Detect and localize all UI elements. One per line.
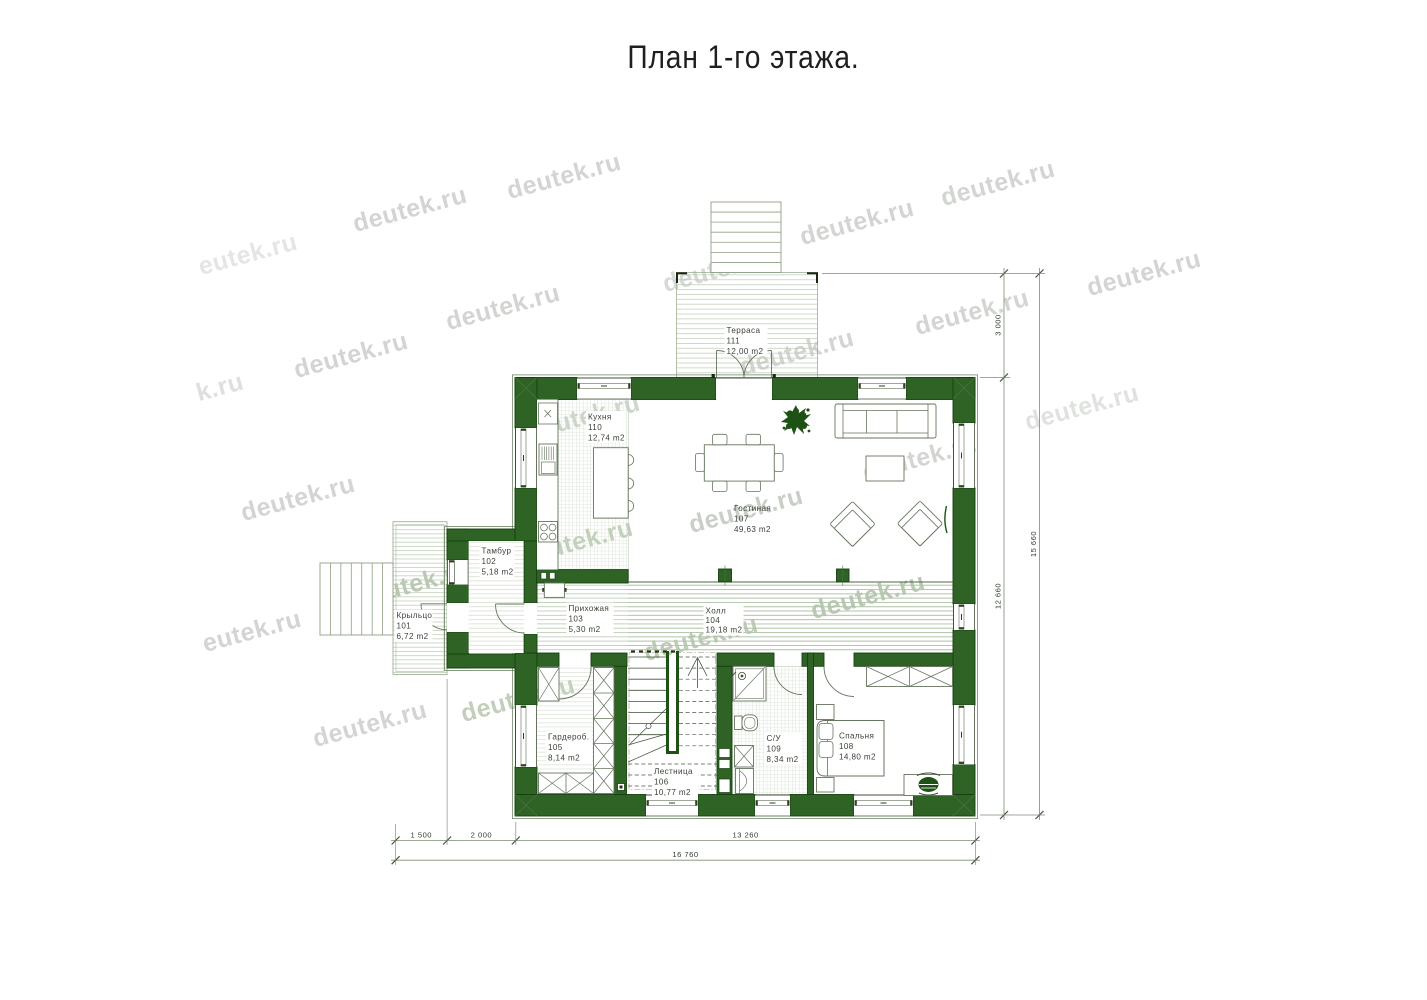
- svg-text:deutek.ru: deutek.ru: [443, 279, 563, 336]
- svg-text:102: 102: [482, 557, 497, 566]
- svg-text:Тамбур: Тамбур: [482, 547, 512, 556]
- svg-text:Кухня: Кухня: [588, 413, 612, 422]
- svg-text:2 000: 2 000: [471, 831, 493, 840]
- svg-text:Гостиная: Гостиная: [734, 504, 771, 513]
- svg-text:105: 105: [548, 743, 563, 752]
- svg-text:Спальня: Спальня: [839, 732, 874, 741]
- svg-text:Прихожая: Прихожая: [569, 604, 610, 613]
- svg-text:deutek.ru: deutek.ru: [291, 327, 411, 384]
- svg-text:5,18 m2: 5,18 m2: [482, 568, 514, 577]
- svg-text:deutek.ru: deutek.ru: [912, 284, 1032, 341]
- svg-text:5,30 m2: 5,30 m2: [569, 625, 601, 634]
- svg-text:103: 103: [569, 615, 584, 624]
- svg-text:Крыльцо: Крыльцо: [397, 611, 433, 620]
- svg-text:deutek.ru: deutek.ru: [310, 696, 430, 753]
- svg-text:101: 101: [397, 622, 412, 631]
- svg-text:3 000: 3 000: [994, 314, 1003, 336]
- svg-text:Холл: Холл: [706, 607, 727, 616]
- svg-text:6,72 m2: 6,72 m2: [397, 632, 429, 641]
- svg-text:Терраса: Терраса: [727, 326, 761, 335]
- svg-text:deutek.ru: deutek.ru: [350, 181, 470, 238]
- svg-text:10,77 m2: 10,77 m2: [654, 788, 691, 797]
- svg-text:С/У: С/У: [767, 734, 782, 743]
- svg-text:14,80 m2: 14,80 m2: [839, 753, 876, 762]
- svg-text:Лестница: Лестница: [654, 767, 693, 776]
- svg-text:eutek.ru: eutek.ru: [195, 228, 300, 281]
- svg-text:107: 107: [734, 515, 749, 524]
- svg-text:106: 106: [654, 778, 669, 787]
- svg-text:eutek.ru: eutek.ru: [199, 605, 304, 658]
- svg-text:deutek.ru: deutek.ru: [504, 148, 624, 205]
- svg-text:12,74 m2: 12,74 m2: [588, 434, 625, 443]
- svg-text:deutek.ru: deutek.ru: [238, 470, 358, 527]
- svg-text:104: 104: [706, 616, 721, 625]
- svg-text:1 500: 1 500: [411, 831, 433, 840]
- svg-text:deutek.ru: deutek.ru: [797, 194, 917, 251]
- svg-text:19,18 m2: 19,18 m2: [706, 626, 743, 635]
- svg-text:13 260: 13 260: [732, 831, 758, 840]
- svg-text:49,63 m2: 49,63 m2: [734, 525, 771, 534]
- svg-text:deutek.ru: deutek.ru: [938, 155, 1058, 212]
- svg-text:108: 108: [839, 742, 854, 751]
- svg-text:8,14 m2: 8,14 m2: [548, 754, 580, 763]
- svg-text:15 660: 15 660: [1029, 531, 1038, 557]
- svg-text:109: 109: [767, 745, 782, 754]
- svg-text:12 660: 12 660: [994, 583, 1003, 609]
- svg-text:8,34 m2: 8,34 m2: [767, 755, 799, 764]
- svg-text:k.ru: k.ru: [193, 368, 246, 407]
- svg-text:16 760: 16 760: [672, 850, 698, 859]
- svg-text:110: 110: [588, 423, 602, 432]
- svg-text:deutek.ru: deutek.ru: [1084, 245, 1204, 302]
- svg-text:111: 111: [727, 337, 741, 346]
- svg-text:Гардероб.: Гардероб.: [548, 733, 589, 742]
- svg-text:12,00 m2: 12,00 m2: [727, 347, 764, 356]
